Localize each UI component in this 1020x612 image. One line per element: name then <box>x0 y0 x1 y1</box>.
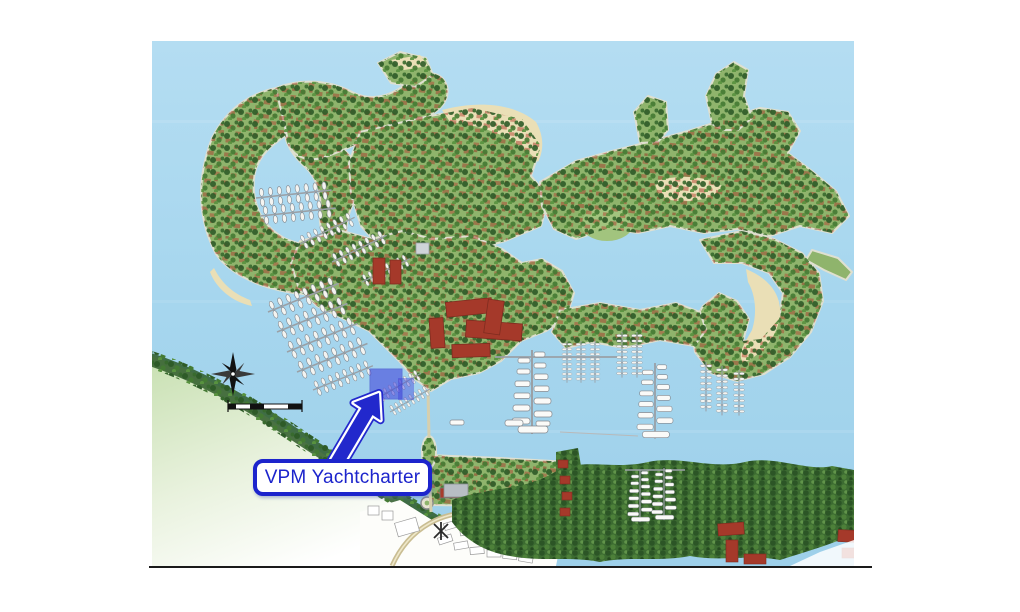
bottom-border-line <box>149 566 872 568</box>
screenshot-stage: VPM Yachtcharter <box>0 0 1020 612</box>
label-text: VPM Yachtcharter <box>265 467 421 489</box>
label-box: VPM Yachtcharter <box>253 459 432 496</box>
